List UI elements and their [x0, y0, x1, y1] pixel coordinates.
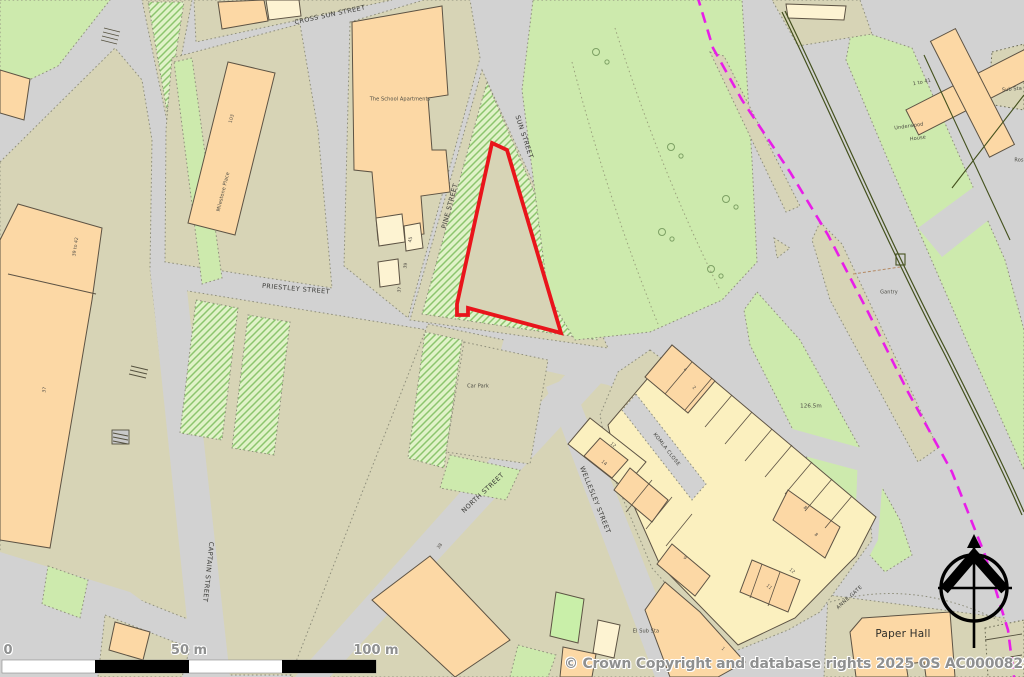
house-number-37-left: 37 [43, 387, 48, 394]
place-label-ros: Ros [1014, 159, 1023, 164]
map-canvas [0, 0, 1024, 677]
site-plan-map[interactable]: CROSS SUN STREET SUN STREET PINE STREET … [0, 0, 1024, 677]
spot-height-label: 126.5m [800, 404, 822, 410]
scale-tick-50m: 50 m [171, 643, 207, 658]
place-label-car-park: Car Park [467, 385, 489, 390]
place-label-school-apartments: The School Apartments [370, 98, 431, 103]
scale-tick-100m: 100 m [353, 643, 398, 658]
place-label-gantry: Gantry [880, 291, 898, 296]
scale-tick-0: 0 [3, 643, 12, 658]
copyright-attribution: © Crown Copyright and database rights 20… [564, 656, 1024, 672]
scale-bar [2, 660, 376, 673]
place-label-paper-hall: Paper Hall [875, 629, 930, 640]
place-label-el-sub-sta: El Sub Sta [633, 630, 659, 635]
